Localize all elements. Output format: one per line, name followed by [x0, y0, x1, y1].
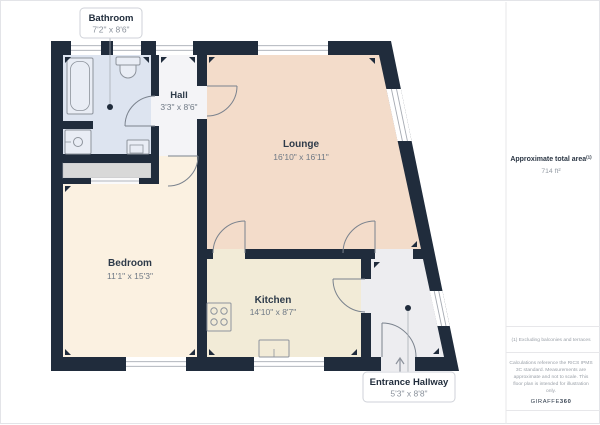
entrance-camera-dot: [405, 305, 411, 311]
window: [71, 41, 101, 55]
sink-icon: [259, 340, 289, 357]
kitchen-label: Kitchen: [255, 295, 292, 306]
footnote: (1) Excluding balconies and terraces: [511, 337, 591, 343]
window: [156, 41, 193, 55]
stove-icon: [207, 303, 231, 331]
bathroom-label: Bathroom: [89, 13, 134, 24]
washbasin-icon: [65, 130, 91, 154]
total-area-text: Approximate total area: [510, 156, 586, 163]
floorplan-page: Hall 3'3" x 8'6" Lounge 16'10" x 16'11" …: [0, 0, 600, 424]
disclaimer-line: Calculations reference the RICS IPMS: [509, 360, 593, 366]
total-area-label: Approximate total area(1): [510, 155, 592, 164]
entrance-dims: 5'3" x 8'8": [390, 389, 427, 399]
window: [254, 357, 324, 371]
wardrobe: [63, 163, 151, 178]
bathtub-icon: [67, 58, 93, 114]
window: [258, 41, 328, 55]
disclaimer-line: only.: [546, 388, 556, 394]
brand-name: GIRAFFE: [531, 399, 560, 405]
bathroom-door-threshold: [151, 96, 159, 126]
entrance-label-box: Entrance Hallway 5'3" x 8'8": [363, 372, 455, 402]
window: [113, 41, 141, 55]
window: [126, 357, 186, 371]
hall-label: Hall: [170, 90, 187, 101]
hall-lounge-threshold: [197, 86, 207, 119]
entrance-label: Entrance Hallway: [370, 377, 449, 388]
bedroom-label: Bedroom: [108, 258, 152, 269]
bathroom-unit-icon: [127, 140, 149, 154]
bathroom-dims: 7'2" x 8'6": [92, 25, 129, 35]
total-area-value: 714 ft²: [541, 168, 561, 175]
bedroom-floor: [63, 156, 197, 357]
floorplan-canvas: Hall 3'3" x 8'6" Lounge 16'10" x 16'11" …: [1, 1, 600, 425]
bedroom-dims: 11'1" x 15'3": [107, 271, 153, 281]
giraffe360-logo: GIRAFFE360: [531, 399, 572, 405]
lounge-kitchen-threshold: [213, 249, 245, 259]
kitchen-entrance-threshold: [361, 279, 371, 313]
disclaimer-line: approximate and not to scale. This: [514, 374, 589, 380]
bathroom-label-box: Bathroom 7'2" x 8'6": [80, 8, 142, 38]
disclaimer-line: 3C standard. Measurements are: [516, 367, 586, 373]
kitchen-dims: 14'10" x 8'7": [250, 307, 297, 317]
lounge-dims: 16'10" x 16'11": [273, 152, 328, 162]
hall-dims: 3'3" x 8'6": [160, 102, 197, 112]
lounge-entrance-threshold: [375, 249, 413, 259]
front-door-threshold: [381, 357, 415, 371]
wardrobe-doors: [91, 178, 139, 184]
lounge-label: Lounge: [283, 139, 320, 150]
total-area-superscript: (1): [586, 155, 592, 160]
bathroom-camera-dot: [107, 104, 113, 110]
brand-suffix: 360: [560, 399, 571, 405]
disclaimer: Calculations reference the RICS IPMS 3C …: [509, 360, 593, 394]
side-panel: Approximate total area(1) 714 ft² (1) Ex…: [506, 2, 600, 424]
disclaimer-line: floor plan is intended for illustration: [513, 381, 589, 387]
